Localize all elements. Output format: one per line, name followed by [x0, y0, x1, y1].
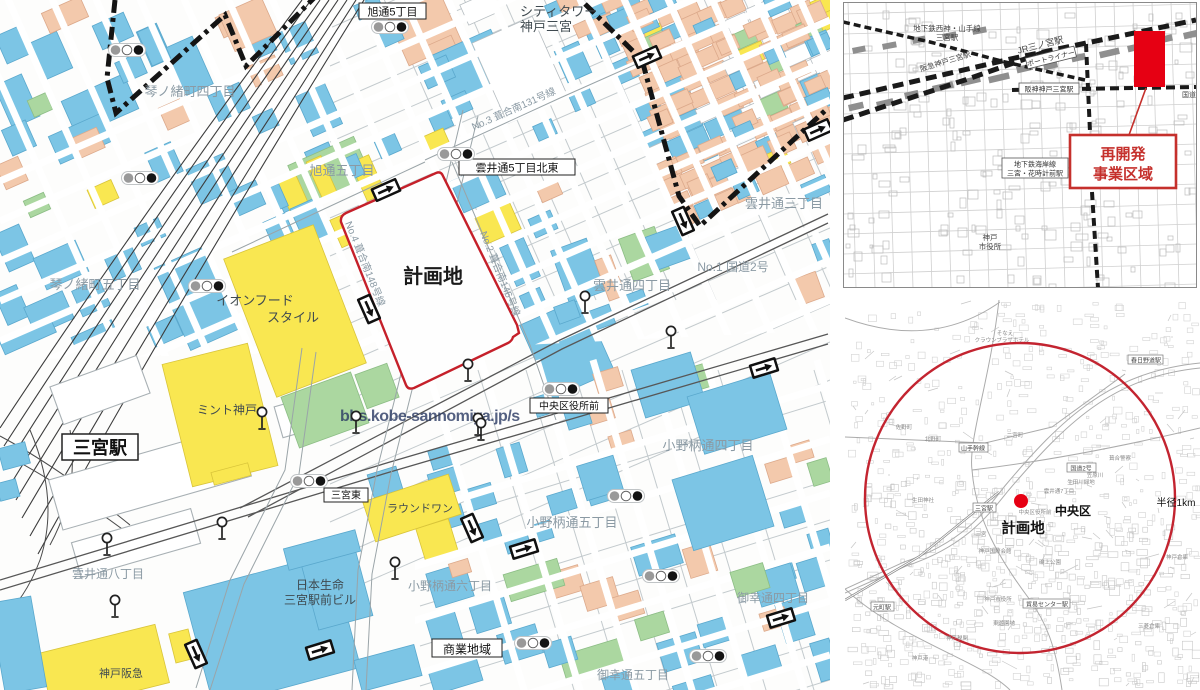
svg-text:琴ノ緒町五丁目: 琴ノ緒町五丁目 [49, 277, 140, 292]
svg-text:春日野道駅: 春日野道駅 [1131, 357, 1161, 365]
svg-text:国道2号: 国道2号 [1070, 465, 1091, 473]
svg-text:クラウンプラザホテル: クラウンプラザホテル [975, 336, 1030, 344]
svg-text:小野柄通五丁目: 小野柄通五丁目 [526, 515, 617, 530]
svg-text:神戸税関: 神戸税関 [946, 634, 969, 642]
svg-text:御幸通四丁目: 御幸通四丁目 [737, 590, 809, 605]
svg-text:三宮駅: 三宮駅 [936, 32, 959, 42]
svg-text:生田川緑地: 生田川緑地 [1067, 478, 1095, 486]
svg-text:三宮駅: 三宮駅 [975, 505, 993, 513]
svg-text:東遊園地: 東遊園地 [993, 619, 1016, 627]
svg-text:ラウンドワン: ラウンドワン [387, 502, 453, 515]
svg-text:雲井通7丁目: 雲井通7丁目 [1044, 487, 1075, 495]
svg-text:中央区: 中央区 [1055, 503, 1091, 518]
svg-text:そなえ: そなえ [997, 330, 1014, 337]
svg-text:神戸国際会館: 神戸国際会館 [978, 547, 1012, 555]
svg-text:地下鉄海岸線: 地下鉄海岸線 [1014, 160, 1056, 169]
svg-text:No.1 国道2号: No.1 国道2号 [697, 260, 768, 274]
svg-text:雲井通三丁目: 雲井通三丁目 [745, 196, 823, 211]
svg-text:貿易センター駅: 貿易センター駅 [1026, 601, 1068, 609]
svg-text:市役所: 市役所 [979, 241, 1002, 251]
svg-text:スタイル: スタイル [267, 310, 319, 325]
svg-text:計画地: 計画地 [1001, 519, 1045, 537]
svg-text:二宮町: 二宮町 [1007, 431, 1024, 439]
svg-text:葺合警察: 葺合警察 [1109, 454, 1132, 462]
svg-text:神戸倉庫: 神戸倉庫 [1166, 553, 1189, 561]
svg-text:神戸阪急: 神戸阪急 [99, 666, 143, 680]
svg-text:計画地: 計画地 [403, 264, 463, 288]
svg-text:元町駅: 元町駅 [873, 605, 891, 612]
svg-text:半径1km: 半径1km [1157, 496, 1196, 509]
svg-text:佐野町: 佐野町 [896, 423, 913, 431]
svg-text:北野町: 北野町 [925, 435, 942, 443]
svg-text:イオンフード: イオンフード [216, 293, 294, 308]
svg-text:事業区域: 事業区域 [1093, 165, 1153, 183]
svg-text:再開発: 再開発 [1100, 145, 1146, 163]
svg-text:神戸: 神戸 [983, 232, 998, 242]
svg-text:三宮駅前ビル: 三宮駅前ビル [284, 592, 356, 607]
svg-text:中央区役所前: 中央区役所前 [1018, 508, 1052, 516]
svg-text:神戸市役所: 神戸市役所 [984, 595, 1012, 603]
svg-text:三宮: 三宮 [975, 530, 987, 538]
svg-text:神戸三宮: 神戸三宮 [520, 19, 572, 34]
svg-text:琴ノ緒町四丁目: 琴ノ緒町四丁目 [144, 84, 235, 99]
svg-text:小野柄通四丁目: 小野柄通四丁目 [662, 438, 753, 453]
svg-text:雲井通四丁目: 雲井通四丁目 [593, 278, 671, 293]
svg-text:三宮東: 三宮東 [331, 489, 361, 502]
svg-text:阪神神戸三宮駅: 阪神神戸三宮駅 [1025, 85, 1074, 94]
svg-text:神戸港: 神戸港 [912, 654, 929, 662]
svg-text:日本生命: 日本生命 [296, 577, 344, 592]
svg-text:旭通五丁目: 旭通五丁目 [309, 163, 374, 178]
svg-text:山手幹線: 山手幹線 [961, 445, 985, 453]
svg-text:地下鉄西神・山手線: 地下鉄西神・山手線 [913, 23, 981, 33]
svg-text:生田神社: 生田神社 [912, 496, 935, 504]
svg-text:商業地域: 商業地域 [443, 642, 491, 657]
svg-text:磯上公園: 磯上公園 [1039, 558, 1062, 566]
svg-text:御幸通五丁目: 御幸通五丁目 [597, 667, 669, 682]
svg-text:三宮駅: 三宮駅 [73, 437, 128, 458]
svg-text:笠原川: 笠原川 [1087, 471, 1104, 479]
svg-text:旭通5丁目: 旭通5丁目 [367, 5, 417, 19]
svg-text:小野柄通六丁目: 小野柄通六丁目 [408, 579, 492, 593]
svg-text:雲井通5丁目北東: 雲井通5丁目北東 [475, 161, 558, 175]
svg-text:三宮・花時計前駅: 三宮・花時計前駅 [1007, 169, 1063, 178]
svg-text:中央区役所前: 中央区役所前 [539, 400, 599, 413]
svg-text:三菱倉庫: 三菱倉庫 [1138, 622, 1161, 630]
svg-text:ミント神戸: ミント神戸 [197, 403, 257, 417]
svg-text:シティタワー: シティタワー [520, 4, 597, 19]
svg-text:bbs.kobe-sannomiya.jp/s: bbs.kobe-sannomiya.jp/s [340, 408, 520, 425]
svg-text:雲井通八丁目: 雲井通八丁目 [72, 567, 144, 581]
